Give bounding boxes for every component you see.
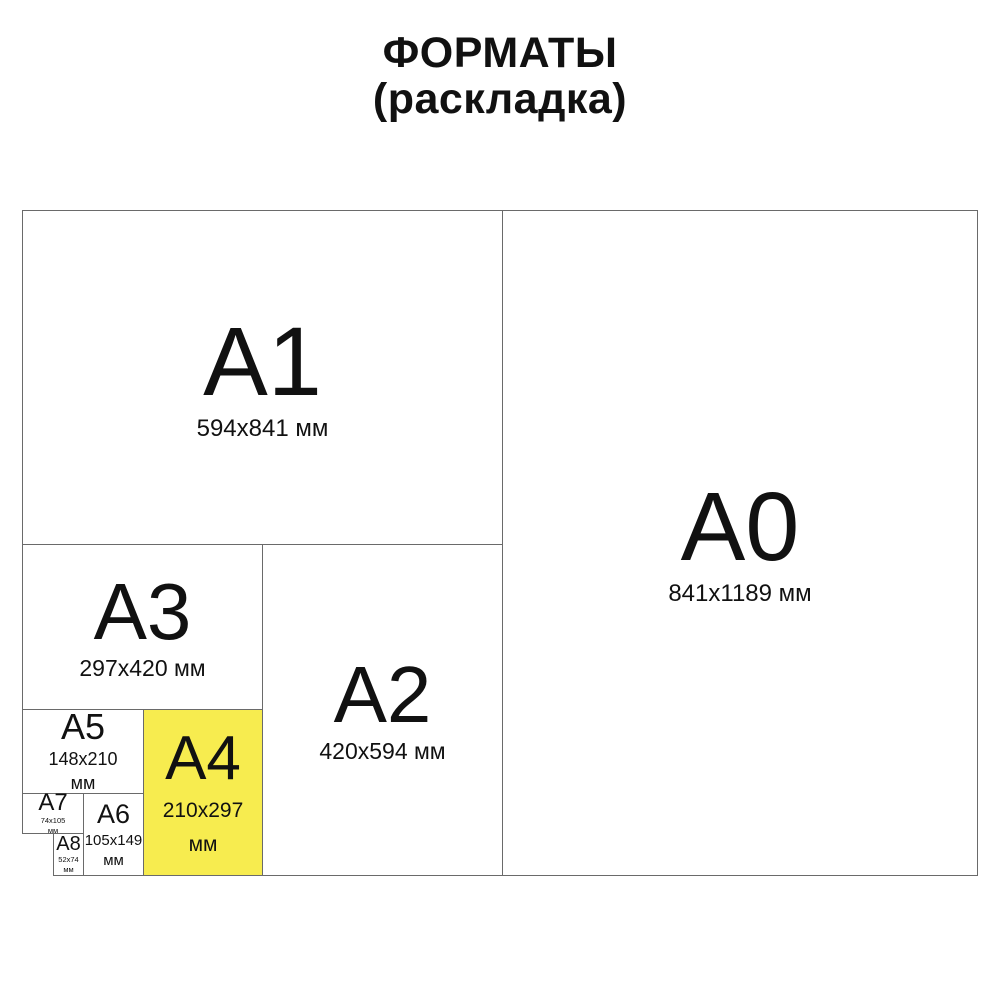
format-a4-dimensions: 210x297 xyxy=(163,799,244,823)
format-box-a5: A5 148x210 мм xyxy=(22,709,144,794)
format-a1-dimensions: 594x841 мм xyxy=(197,415,329,443)
format-box-a0: A0 841x1189 мм xyxy=(502,210,978,876)
format-a6-unit: мм xyxy=(103,852,124,869)
diagram-title: ФОРМАТЫ (раскладка) xyxy=(0,30,1000,122)
format-a7-dimensions: 74x105 xyxy=(41,816,66,825)
format-box-a1: A1 594x841 мм xyxy=(22,210,503,545)
format-a8-label: A8 xyxy=(56,835,80,853)
format-a2-dimensions: 420x594 мм xyxy=(319,738,445,765)
title-line-2: (раскладка) xyxy=(0,76,1000,122)
format-a0-dimensions: 841x1189 мм xyxy=(668,580,811,608)
format-a7-label: A7 xyxy=(38,792,67,814)
format-a4-unit: мм xyxy=(189,833,218,857)
format-box-a4-highlighted: A4 210x297 мм xyxy=(143,709,263,876)
paper-formats-diagram: ФОРМАТЫ (раскладка) A0 841x1189 мм A1 59… xyxy=(0,0,1000,1000)
format-a3-dimensions: 297x420 мм xyxy=(79,655,205,682)
title-line-1: ФОРМАТЫ xyxy=(0,30,1000,76)
format-a0-label: A0 xyxy=(681,478,800,575)
format-a8-dimensions: 52x74 xyxy=(58,855,78,864)
format-box-a3: A3 297x420 мм xyxy=(22,544,263,710)
format-a1-label: A1 xyxy=(203,313,322,410)
format-box-a7: A7 74x105 мм xyxy=(22,793,84,834)
format-a5-dimensions: 148x210 xyxy=(48,749,117,770)
format-a8-unit: мм xyxy=(63,865,73,874)
format-a3-label: A3 xyxy=(94,572,192,652)
format-box-a2: A2 420x594 мм xyxy=(262,544,503,876)
format-a2-label: A2 xyxy=(334,655,432,735)
format-a5-unit: мм xyxy=(71,773,96,794)
format-box-a8: A8 52x74 мм xyxy=(53,833,84,876)
format-box-a6: A6 105x149 мм xyxy=(83,793,144,876)
format-a6-label: A6 xyxy=(97,801,130,828)
format-a6-dimensions: 105x149 xyxy=(85,832,143,849)
format-a4-label: A4 xyxy=(165,728,241,790)
format-a5-label: A5 xyxy=(61,709,105,745)
